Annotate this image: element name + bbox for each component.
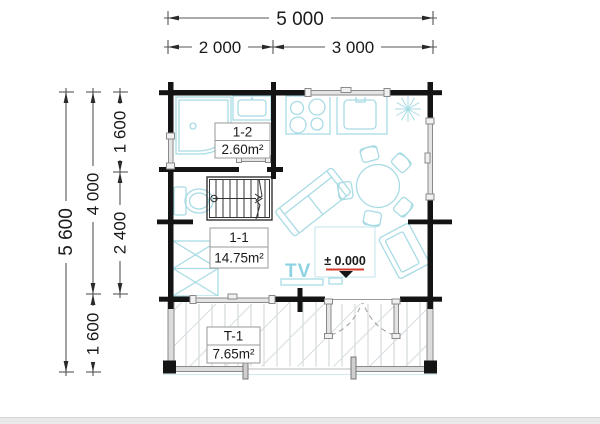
bathroom-window	[167, 133, 176, 169]
level-marker: ± 0.000	[324, 254, 366, 278]
terrace-post	[351, 357, 356, 379]
terrace-corner-post	[424, 361, 437, 374]
terrace-doors	[325, 296, 401, 339]
plant-icon	[395, 96, 421, 122]
dining-chair	[362, 210, 382, 227]
dim-terrace-depth-label: 1 600	[84, 313, 103, 356]
dim-bathroom-depth-label: 1 600	[111, 111, 130, 154]
dim-total-depth-label: 5 600	[56, 208, 77, 256]
dimension-total-depth: 5 600	[56, 88, 77, 376]
dining-table	[337, 145, 414, 227]
stove	[286, 96, 330, 134]
armchair	[378, 223, 430, 280]
kitchen-sink	[337, 96, 387, 134]
dim-width-left-label: 2 000	[199, 38, 242, 57]
room-area: 2.60m²	[221, 142, 264, 157]
terrace-front-rail-right	[352, 367, 427, 372]
room-area: 7.65m²	[212, 347, 255, 362]
floor-plan: 5 000 2 000 3 000 5 600	[0, 0, 600, 424]
room-id: 1-2	[233, 125, 253, 140]
terrace-front-rail-left	[174, 367, 246, 372]
dimension-house-terrace-depth: 4 000 1 600	[84, 88, 103, 376]
level-marker-label: ± 0.000	[324, 254, 366, 268]
room-id: 1-1	[229, 230, 249, 245]
room-id: T-1	[224, 329, 244, 344]
room-area: 14.75m²	[214, 251, 264, 266]
floor-plan-page: 5 000 2 000 3 000 5 600	[0, 0, 600, 424]
bathroom-partition-wall	[168, 167, 239, 172]
bathroom-sink	[233, 96, 271, 120]
room-label-living: 1-1 14.75m²	[210, 228, 268, 268]
dim-total-width-label: 5 000	[276, 9, 324, 30]
dimension-width-split: 2 000 3 000	[164, 38, 437, 57]
kitchen-window	[305, 88, 390, 98]
dim-living-depth-label: 2 400	[111, 212, 130, 255]
dim-house-depth-label: 4 000	[84, 173, 103, 216]
bathroom-partition-wall	[267, 167, 276, 172]
room-label-terrace: T-1 7.65m²	[207, 327, 260, 363]
tv-label: TV	[285, 261, 311, 282]
terrace-corner-post	[163, 361, 176, 374]
dimension-total-width: 5 000	[164, 8, 437, 30]
sofa	[275, 167, 351, 237]
bathroom-partition-wall	[271, 90, 276, 172]
stairs	[207, 177, 272, 220]
dim-width-right-label: 3 000	[332, 38, 375, 57]
room-label-bathroom: 1-2 2.60m²	[215, 123, 270, 158]
dimension-room-depths: 1 600 2 400	[111, 88, 130, 298]
bottom-strip	[0, 418, 600, 424]
living-window-right	[425, 118, 435, 200]
dining-chair	[359, 145, 380, 163]
